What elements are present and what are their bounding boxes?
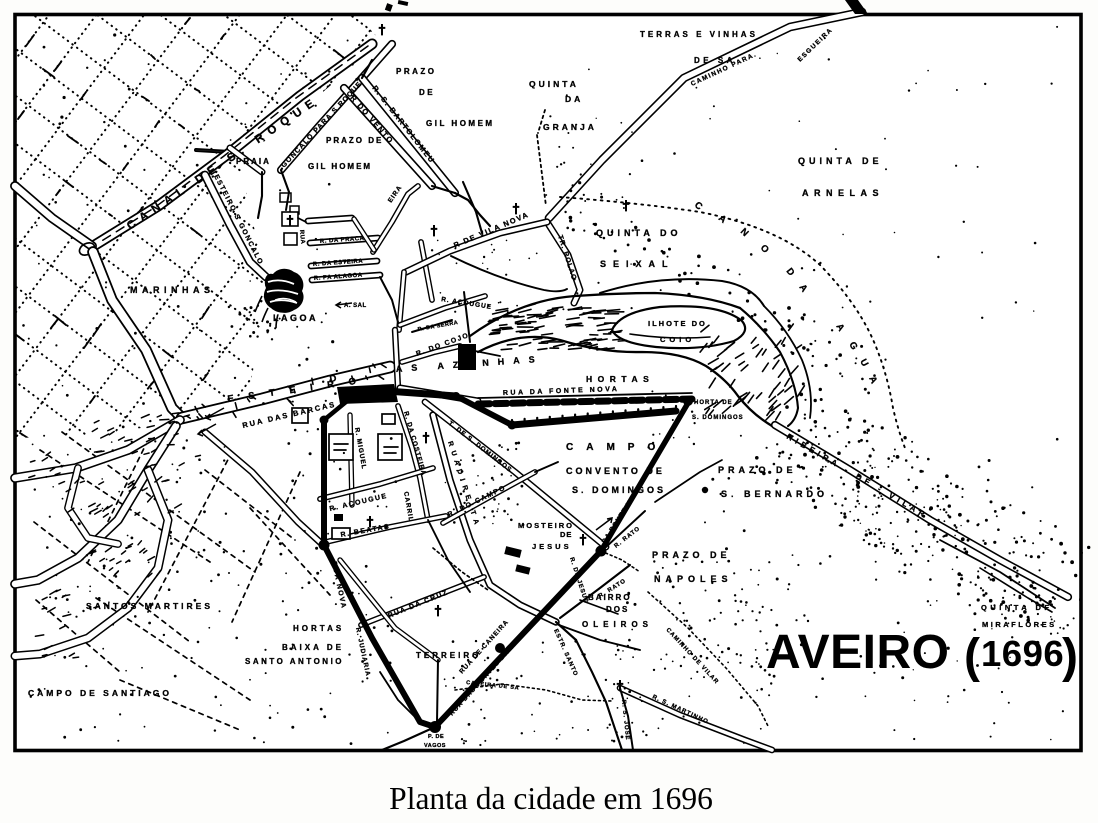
- svg-text:QUINTA DO: QUINTA DO: [596, 228, 682, 238]
- svg-text:NAPOLES: NAPOLES: [654, 574, 733, 584]
- svg-text:MOSTEIRO: MOSTEIRO: [518, 521, 574, 530]
- svg-text:SEIXAL: SEIXAL: [600, 259, 675, 269]
- svg-text:): ): [1062, 630, 1078, 683]
- svg-text:PRAIA: PRAIA: [236, 157, 271, 166]
- svg-text:RUA: RUA: [298, 230, 305, 245]
- svg-text:PRAZO: PRAZO: [396, 67, 437, 76]
- svg-text:GIL HOMEM: GIL HOMEM: [426, 119, 495, 128]
- svg-text:MIRAFLORES: MIRAFLORES: [982, 620, 1057, 629]
- svg-text:OLEIROS: OLEIROS: [582, 620, 653, 629]
- svg-text:BAIRRO: BAIRRO: [588, 593, 632, 602]
- svg-text:PRAZO DE: PRAZO DE: [652, 550, 731, 560]
- svg-text:S. DOMINGOS: S. DOMINGOS: [572, 485, 666, 495]
- svg-text:AVEIRO: AVEIRO: [766, 626, 949, 679]
- svg-text:GRANJA: GRANJA: [543, 122, 597, 132]
- svg-text:(: (: [964, 630, 980, 683]
- svg-text:SANTO ANTONIO: SANTO ANTONIO: [245, 657, 344, 666]
- svg-text:JESUS: JESUS: [532, 542, 572, 551]
- svg-text:DE: DE: [419, 88, 435, 97]
- svg-text:S. BERNARDO: S. BERNARDO: [721, 489, 828, 499]
- svg-text:S. DOMINGOS: S. DOMINGOS: [692, 415, 744, 421]
- svg-text:QUINTA: QUINTA: [529, 79, 579, 89]
- svg-text:HORTAS: HORTAS: [293, 624, 344, 633]
- svg-text:DOS: DOS: [606, 605, 629, 614]
- svg-text:CAMPO DE SANTIAGO: CAMPO DE SANTIAGO: [28, 688, 172, 698]
- svg-text:HORTA DE: HORTA DE: [694, 400, 733, 406]
- svg-text:BAIXA DE: BAIXA DE: [282, 643, 344, 652]
- svg-text:PRAZO DE: PRAZO DE: [326, 136, 383, 145]
- svg-text:COIO: COIO: [660, 335, 695, 344]
- svg-text:Planta da cidade em 1696: Planta da cidade em 1696: [389, 781, 713, 816]
- svg-text:A. SAL: A. SAL: [344, 303, 367, 309]
- svg-text:DE: DE: [560, 530, 572, 539]
- svg-text:CONVENTO DE: CONVENTO DE: [566, 466, 665, 476]
- svg-text:ILHOTE DO: ILHOTE DO: [648, 319, 707, 328]
- svg-text:1696: 1696: [981, 633, 1064, 674]
- svg-text:QUINTA DE: QUINTA DE: [798, 156, 883, 166]
- svg-text:TERRAS E VINHAS: TERRAS E VINHAS: [640, 30, 758, 39]
- svg-text:ARNELAS: ARNELAS: [802, 188, 884, 198]
- svg-text:VAGOS: VAGOS: [424, 743, 446, 749]
- svg-text:MARINHAS: MARINHAS: [130, 285, 215, 295]
- svg-text:P. DE: P. DE: [428, 734, 444, 740]
- svg-text:HORTAS: HORTAS: [586, 374, 654, 384]
- svg-text:SANTOS MARTIRES: SANTOS MARTIRES: [86, 601, 213, 611]
- svg-text:GIL HOMEM: GIL HOMEM: [308, 162, 372, 171]
